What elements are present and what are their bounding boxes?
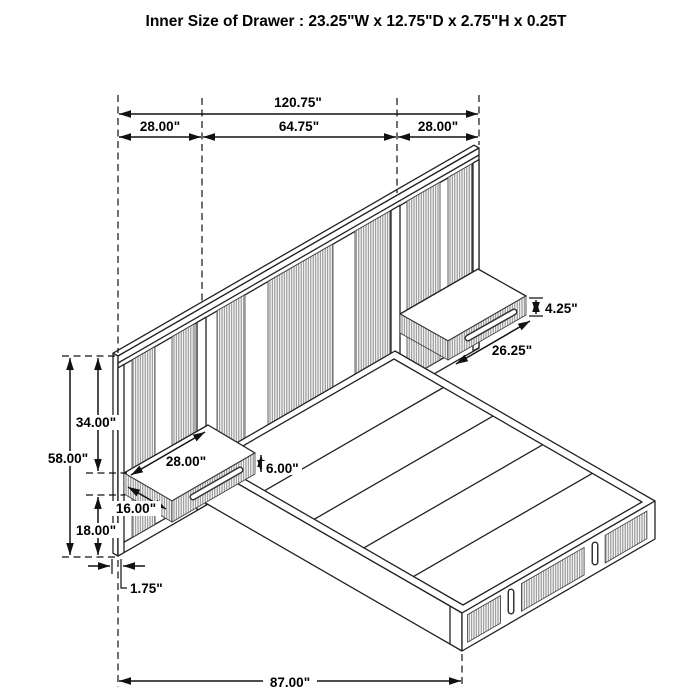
dim-label-left-section: 28.00" [140,119,180,134]
dim-label-center-section: 64.75" [279,119,319,134]
dim-label-left-nightstand-depth: 16.00" [116,501,156,516]
diagram-title: Inner Size of Drawer : 23.25"W x 12.75"D… [146,13,567,30]
dim-label-headboard-lower: 18.00" [76,523,116,538]
dim-label-headboard-upper: 34.00" [76,415,116,430]
dim-label-panel-thickness: 1.75" [130,581,163,596]
dim-label-right-nightstand-width: 26.25" [492,343,532,358]
dim-label-right-section: 28.00" [418,119,458,134]
bed-dimension-diagram: Inner Size of Drawer : 23.25"W x 12.75"D… [0,0,700,700]
dim-label-left-nightstand-height: 6.00" [266,461,299,476]
dim-label-total-width: 120.75" [274,95,322,110]
dim-label-headboard-height: 58.00" [48,451,88,466]
dim-label-bed-length: 87.00" [270,675,310,690]
dim-label-right-nightstand-height: 4.25" [545,301,578,316]
dim-label-left-nightstand-width: 28.00" [166,454,206,469]
